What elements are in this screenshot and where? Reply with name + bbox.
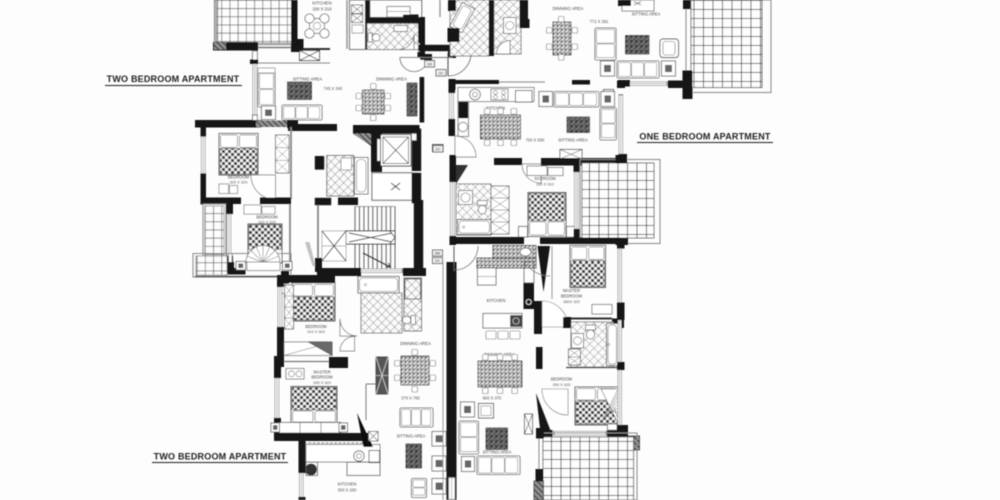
svg-text:745 X 340: 745 X 340 <box>324 86 343 91</box>
svg-text:DINNING AREA: DINNING AREA <box>553 6 584 11</box>
svg-text:KITCHEN: KITCHEN <box>338 482 357 487</box>
svg-text:330 X 310: 330 X 310 <box>312 7 332 12</box>
svg-text:320 X 320: 320 X 320 <box>230 180 249 185</box>
svg-text:TWO BEDROOM APARTMENT: TWO BEDROOM APARTMENT <box>154 452 287 462</box>
svg-text:BEDROOM: BEDROOM <box>561 294 583 299</box>
svg-text:2K: 2K <box>435 258 440 263</box>
svg-text:DINNING AREA: DINNING AREA <box>400 341 431 346</box>
svg-text:2C: 2C <box>435 147 440 152</box>
svg-text:SITTING AREA: SITTING AREA <box>558 138 588 143</box>
svg-text:SITTING AREA: SITTING AREA <box>293 77 323 82</box>
svg-text:MASTER: MASTER <box>563 288 580 293</box>
svg-text:BB: BB <box>435 251 441 256</box>
svg-text:BEDROOM: BEDROOM <box>534 176 556 181</box>
svg-text:TWO BEDROOM APARTMENT: TWO BEDROOM APARTMENT <box>107 74 240 84</box>
svg-text:2B: 2B <box>427 62 432 67</box>
svg-text:2C: 2C <box>438 71 443 76</box>
svg-text:BEDROOM: BEDROOM <box>551 377 573 382</box>
svg-text:772 X 392: 772 X 392 <box>590 19 609 24</box>
svg-text:KITCHEN: KITCHEN <box>487 298 506 303</box>
svg-text:760 X 930: 760 X 930 <box>526 138 545 143</box>
svg-text:330 X 310: 330 X 310 <box>536 182 555 187</box>
svg-text:DINNING AREA: DINNING AREA <box>376 77 407 82</box>
svg-text:379 X 765: 379 X 765 <box>401 396 420 401</box>
svg-text:SITTING AREA: SITTING AREA <box>397 434 426 439</box>
svg-text:360X 320: 360X 320 <box>563 299 580 304</box>
svg-text:BEDROOM: BEDROOM <box>311 375 333 380</box>
svg-text:350 X 325: 350 X 325 <box>553 382 571 387</box>
svg-text:960 X 370: 960 X 370 <box>483 396 502 401</box>
svg-text:ONE BEDROOM APARTMENT: ONE BEDROOM APARTMENT <box>639 132 770 142</box>
svg-text:SITTING AREA: SITTING AREA <box>632 12 661 17</box>
svg-text:345 X 320: 345 X 320 <box>313 380 332 385</box>
svg-text:SITTING AREA: SITTING AREA <box>483 450 512 455</box>
svg-text:300 X 260: 300 X 260 <box>338 488 357 493</box>
svg-text:KITCHEN: KITCHEN <box>312 1 331 6</box>
svg-text:310 X 320: 310 X 320 <box>307 329 326 334</box>
